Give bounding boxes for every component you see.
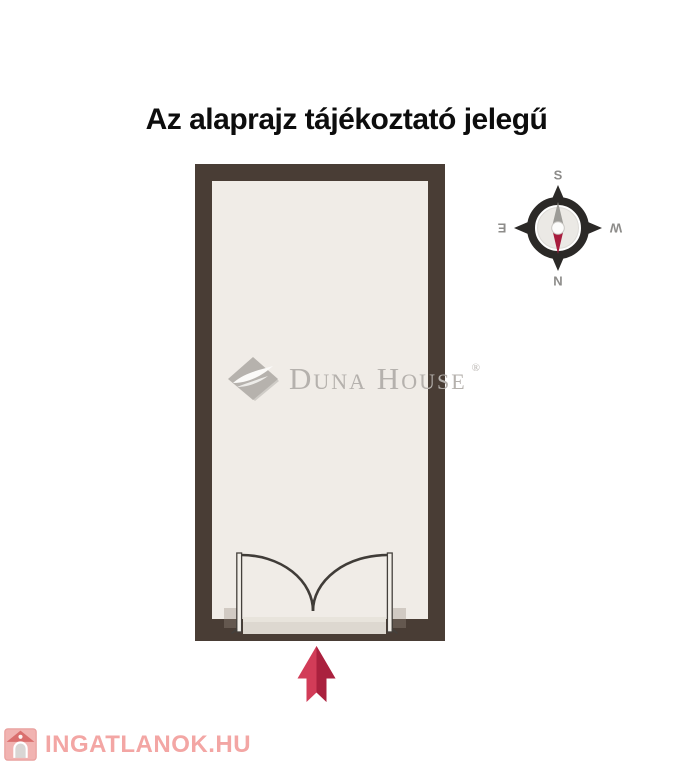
door-threshold-highlight [243, 617, 386, 622]
door-jamb-mark-right [393, 608, 406, 628]
floorplan-image: Az alaprajz tájékoztató jelegű [0, 0, 693, 768]
entrance-arrow-shade [317, 646, 336, 702]
compass-label-east: E [497, 221, 506, 236]
compass-rose: S N E W [493, 162, 623, 294]
duna-house-watermark: Duna House ® [226, 356, 484, 402]
house-icon-window [18, 735, 22, 739]
compass-needle-hub [552, 222, 565, 235]
duna-house-wordmark: Duna House [289, 361, 467, 397]
house-icon-door [14, 742, 26, 757]
door-jamb-mark-left [224, 608, 237, 628]
ingatlanok-house-icon [4, 728, 37, 761]
entrance-arrow [298, 646, 336, 702]
registered-mark: ® [472, 362, 480, 374]
door-leaf-right [387, 553, 392, 632]
compass-label-west: W [609, 221, 622, 236]
compass-label-south: S [554, 168, 563, 183]
ingatlanok-wordmark: INGATLANOK.HU [45, 731, 251, 759]
ingatlanok-logo: INGATLANOK.HU [4, 728, 251, 761]
door-leaf-left [237, 553, 242, 632]
compass-label-north: N [553, 274, 562, 289]
duna-house-diamond-icon [226, 356, 280, 402]
